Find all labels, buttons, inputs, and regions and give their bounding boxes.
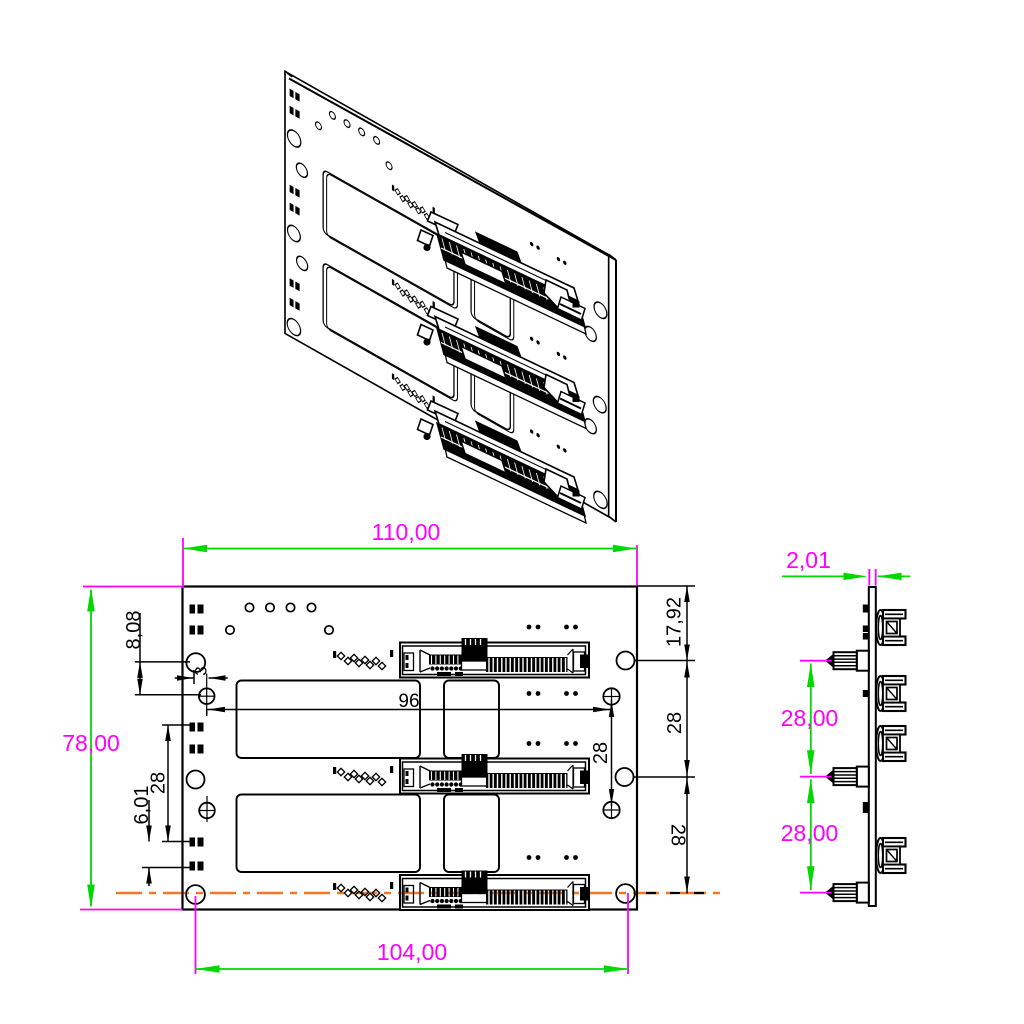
svg-text:78,00: 78,00: [62, 730, 120, 756]
svg-text:8,08: 8,08: [123, 611, 145, 650]
svg-text:96: 96: [398, 691, 419, 712]
svg-text:17,92: 17,92: [664, 597, 686, 647]
svg-text:28: 28: [664, 712, 686, 734]
svg-text:28: 28: [667, 824, 689, 846]
svg-text:2,01: 2,01: [786, 547, 831, 573]
svg-text:6,01: 6,01: [131, 786, 153, 825]
svg-text:28,00: 28,00: [781, 820, 839, 846]
svg-text:28,00: 28,00: [781, 705, 839, 731]
svg-text:104,00: 104,00: [377, 939, 447, 965]
svg-text:3: 3: [192, 666, 211, 675]
svg-text:110,00: 110,00: [372, 519, 441, 545]
svg-text:28: 28: [590, 742, 612, 764]
